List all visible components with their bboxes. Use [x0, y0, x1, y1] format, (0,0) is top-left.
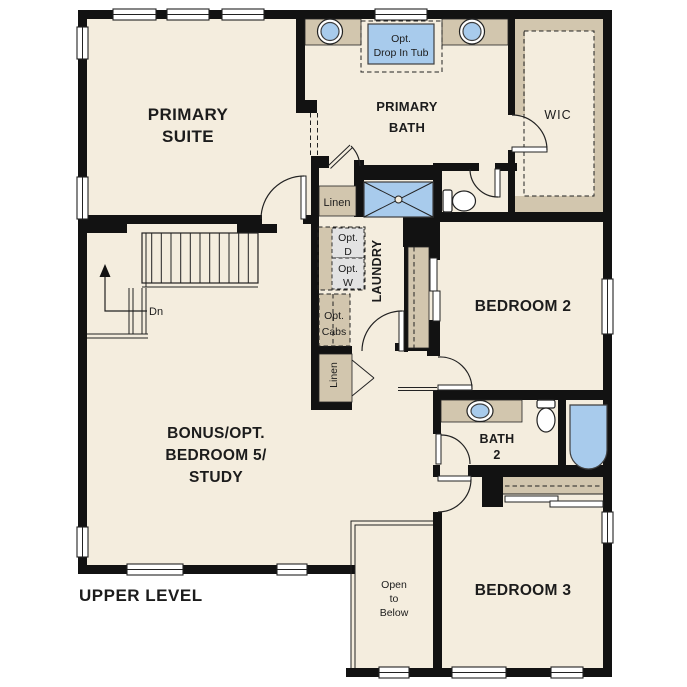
bonus-room-label: BEDROOM 5/: [165, 447, 267, 464]
opt-dryer-label: Opt.: [338, 232, 358, 244]
primary-suite-label: SUITE: [162, 127, 214, 146]
closet-bypass-door: [433, 291, 440, 321]
window: [452, 667, 506, 678]
closet-bypass-door: [550, 501, 603, 507]
opt-cabs-label: Opt.: [324, 310, 344, 322]
window: [127, 564, 183, 575]
stairs-dn-label: Dn: [149, 306, 163, 318]
linen-upper-label: Linen: [324, 197, 351, 209]
window: [379, 667, 409, 678]
window: [222, 9, 264, 20]
bedroom3-label: BEDROOM 3: [475, 582, 572, 599]
sink-icon: [467, 401, 493, 422]
laundry-label: LAUNDRY: [370, 239, 384, 302]
opt-dryer-label: D: [344, 246, 352, 258]
primary-bath-label: BATH: [389, 120, 425, 135]
opt-washer-label: W: [343, 277, 353, 289]
window: [77, 27, 88, 59]
window: [113, 9, 156, 20]
bonus-room-label: STUDY: [189, 469, 243, 486]
opt-cabs-label: Cabs: [322, 326, 347, 338]
opt-drop-in-tub-label: Opt.: [391, 33, 411, 45]
sink-icon: [460, 19, 485, 44]
window: [277, 564, 307, 575]
window: [602, 279, 613, 334]
opt-washer-label: Opt.: [338, 263, 358, 275]
open-to-below-label: to: [390, 593, 399, 605]
linen-lower-label: Linen: [328, 362, 340, 388]
window: [602, 512, 613, 543]
window: [375, 9, 427, 20]
bath2-label: BATH: [480, 432, 515, 446]
floorplan-page: PRIMARY SUITE PRIMARY BATH Opt. Drop In …: [0, 0, 687, 687]
open-to-below-label: Open: [381, 579, 407, 591]
floorplan-svg: PRIMARY SUITE PRIMARY BATH Opt. Drop In …: [0, 0, 687, 687]
bath2-label: 2: [493, 448, 500, 462]
window: [167, 9, 209, 20]
toilet-icon: [443, 190, 476, 212]
primary-suite-label: PRIMARY: [148, 105, 229, 124]
primary-bath-label: PRIMARY: [376, 99, 438, 114]
closet-bypass-door: [430, 258, 437, 291]
bonus-room-label: BONUS/OPT.: [167, 425, 265, 442]
bedroom2-label: BEDROOM 2: [475, 298, 572, 315]
window: [77, 527, 88, 557]
shower-icon: [364, 182, 433, 217]
wic-label: WIC: [544, 108, 571, 122]
bathtub-icon: [570, 405, 607, 469]
window: [551, 667, 583, 678]
page-title: UPPER LEVEL: [79, 586, 203, 605]
open-to-below-label: Below: [380, 607, 409, 619]
bedroom3-closet: [503, 477, 603, 507]
sink-icon: [318, 19, 343, 44]
window: [77, 177, 88, 219]
opt-drop-in-tub-label: Drop In Tub: [374, 47, 429, 59]
toilet-icon: [537, 400, 555, 432]
